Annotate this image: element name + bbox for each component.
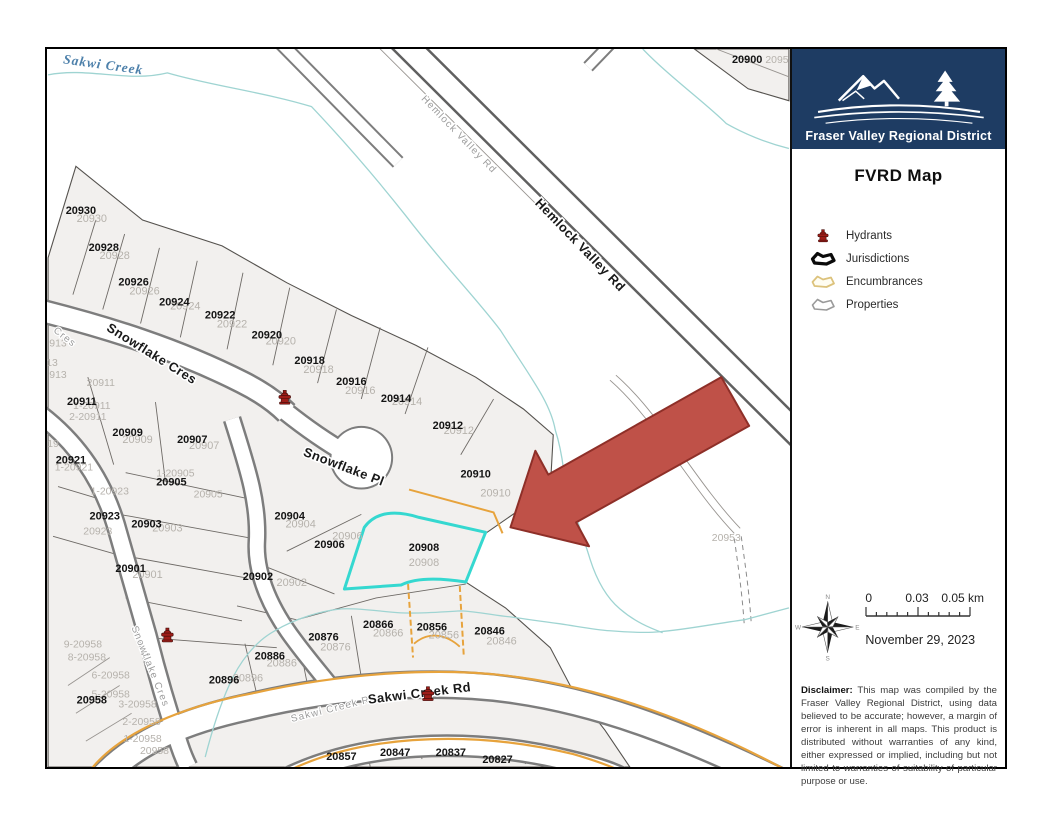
fvrd-map-page: 9131391319209111-209112-209111-209211-20… xyxy=(0,0,1056,816)
unit-label: 6-20958 xyxy=(92,670,130,681)
unit-label: 9-20958 xyxy=(64,640,102,651)
map-date: November 29, 2023 xyxy=(865,633,1004,647)
compass-rose-icon: N E S W xyxy=(794,591,861,665)
parcel-label: 20904 xyxy=(275,510,306,522)
scale-bar-ticks xyxy=(865,606,985,618)
map-frame: 9131391319209111-209112-209111-209211-20… xyxy=(45,47,1007,769)
parcel-label: 20909 xyxy=(112,427,142,439)
parcel-label: 20900 xyxy=(732,54,762,66)
parcel-label: 20837 xyxy=(436,747,466,759)
parcel-label: 20928 xyxy=(89,242,119,254)
parcel-label: 20906 xyxy=(314,539,344,551)
parcel-label: 20905 xyxy=(156,477,186,489)
parcel-label-gray: 20902 xyxy=(277,577,307,589)
unit-label: 2095 xyxy=(765,55,788,66)
parcel-label: 20922 xyxy=(205,309,235,321)
scale-tick-003: 0.03 xyxy=(905,591,928,605)
unit-label: 913 xyxy=(49,370,67,381)
parcel-label: 20930 xyxy=(66,205,96,217)
unit-label: 1-20923 xyxy=(91,487,129,498)
map-svg: 9131391319209111-209112-209111-209211-20… xyxy=(47,49,790,767)
org-name: Fraser Valley Regional District xyxy=(805,129,991,143)
parcel-label: 20958 xyxy=(77,694,107,706)
properties-icon xyxy=(806,296,840,313)
parcel-label: 20924 xyxy=(159,297,190,309)
parcel-label: 20876 xyxy=(308,632,338,644)
parcel-label: 20926 xyxy=(118,277,148,289)
legend-label: Properties xyxy=(846,299,898,311)
compass-e: E xyxy=(855,624,859,631)
parcel-label: 20903 xyxy=(131,518,161,530)
compass-w: W xyxy=(795,624,802,631)
encumbrances-icon xyxy=(806,273,840,290)
parcel-label: 20866 xyxy=(363,619,393,631)
parcel-label: 20910 xyxy=(460,469,490,481)
legend: Hydrants Jurisdictions Encumbrances xyxy=(792,224,1005,316)
compass-n: N xyxy=(825,594,830,601)
parcel-label: 20921 xyxy=(56,455,86,467)
parcel-label: 20846 xyxy=(474,626,504,638)
parcel-label: 20914 xyxy=(381,393,412,405)
legend-item-encumbrances[interactable]: Encumbrances xyxy=(806,270,1005,293)
parcel-label-gray: 20908 xyxy=(409,557,439,569)
legend-item-jurisdictions[interactable]: Jurisdictions xyxy=(806,247,1005,270)
map-meta-block: N E S W 0 0.03 0.05 km xyxy=(794,591,1004,665)
legend-label: Jurisdictions xyxy=(846,253,909,265)
parcel-label: 20857 xyxy=(326,751,356,763)
parcel-label: 20923 xyxy=(90,510,120,522)
scale-bar: 0 0.03 0.05 km November 29, 2023 xyxy=(865,591,1004,647)
unit-label: 2-20958 xyxy=(122,717,160,728)
hydrant-icon xyxy=(806,228,840,243)
parcel-label: 20907 xyxy=(177,434,207,446)
fvrd-logo: Fraser Valley Regional District xyxy=(792,49,1005,149)
parcel-label: 20902 xyxy=(243,571,273,583)
parcel-label: 20856 xyxy=(417,622,447,634)
sakwi-creek-label: Sakwi Creek xyxy=(62,51,144,77)
unit-label: 8-20958 xyxy=(68,653,106,664)
unit-label: 20958 xyxy=(140,746,169,757)
map-title: FVRD Map xyxy=(792,166,1005,186)
unit-label: 20911 xyxy=(87,378,115,389)
unit-label: 20953 xyxy=(712,533,741,544)
legend-item-properties[interactable]: Properties xyxy=(806,293,1005,316)
unit-label: 3-20958 xyxy=(118,699,156,710)
parcel-label: 20916 xyxy=(336,376,366,388)
compass-s: S xyxy=(826,656,830,663)
map-canvas[interactable]: 9131391319209111-209112-209111-209211-20… xyxy=(47,49,790,767)
parcel-label-gray: 20910 xyxy=(480,488,510,500)
fvrd-logo-art xyxy=(804,63,994,127)
disclaimer-text: This map was compiled by the Fraser Vall… xyxy=(801,685,997,787)
parcel-label: 20847 xyxy=(380,747,410,759)
legend-label: Hydrants xyxy=(846,230,892,242)
unit-label: 13 xyxy=(47,358,58,369)
disclaimer: Disclaimer: This map was compiled by the… xyxy=(801,685,997,789)
parcel-label: 20886 xyxy=(255,651,285,663)
jurisdictions-icon xyxy=(806,250,840,267)
parcel-label: 20908 xyxy=(409,542,439,554)
unit-label: 1-20958 xyxy=(123,734,161,745)
parcel-label: 20912 xyxy=(433,420,463,432)
parcel-label: 20918 xyxy=(294,355,324,367)
unit-label: 2-20911 xyxy=(69,412,107,423)
disclaimer-label: Disclaimer: xyxy=(801,685,853,696)
unit-label: 19 xyxy=(47,439,59,450)
legend-label: Encumbrances xyxy=(846,276,923,288)
parcel-label: 20901 xyxy=(115,563,145,575)
parcel-label: 20920 xyxy=(252,329,282,341)
scale-tick-0: 0 xyxy=(865,591,872,605)
unit-label: 20905 xyxy=(194,490,223,501)
unit-label: 20923 xyxy=(83,526,112,537)
parcel-label: 20896 xyxy=(209,674,239,686)
scale-tick-005: 0.05 km xyxy=(941,591,984,605)
sidebar: Fraser Valley Regional District FVRD Map… xyxy=(790,49,1005,767)
parcel-label: 20911 xyxy=(67,396,97,408)
legend-item-hydrants[interactable]: Hydrants xyxy=(806,224,1005,247)
parcel-label: 20827 xyxy=(482,754,512,766)
